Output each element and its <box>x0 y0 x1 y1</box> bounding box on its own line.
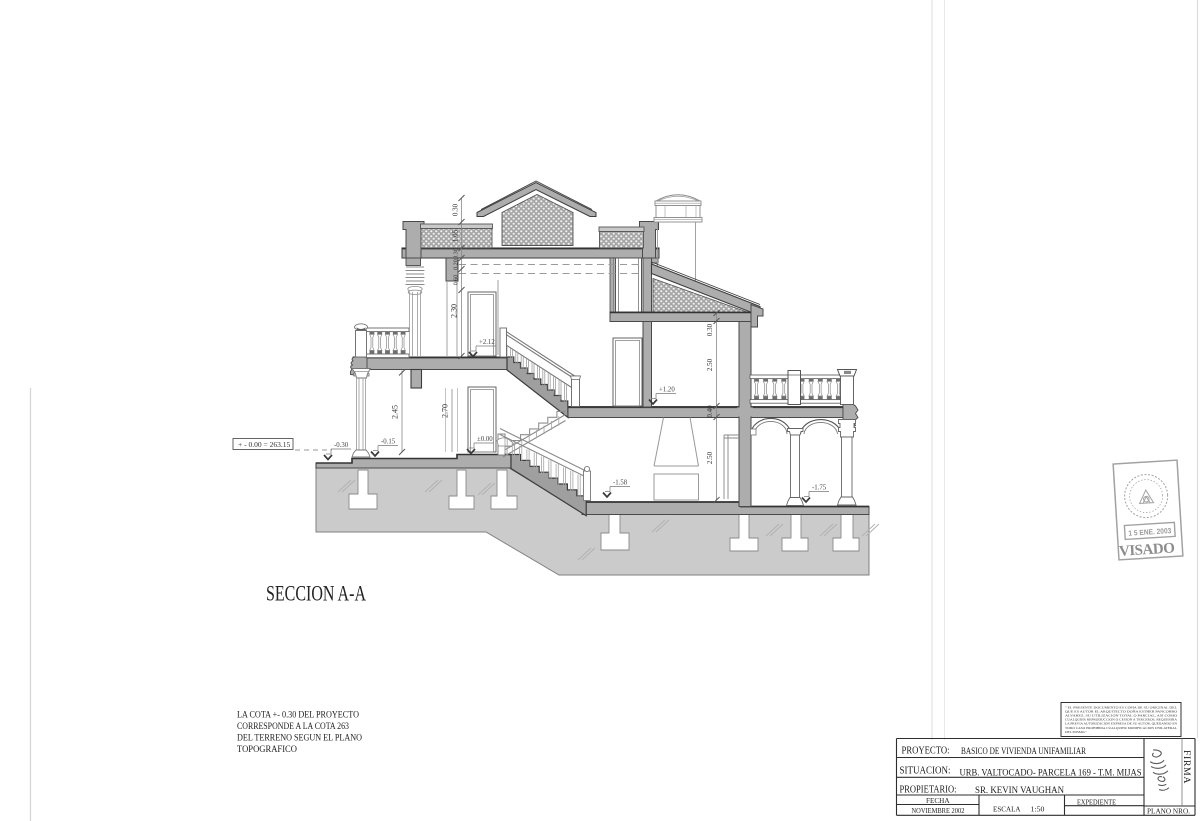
svg-text:-0.15: -0.15 <box>381 439 396 446</box>
svg-text:+ - 0.00 = 263.15: + - 0.00 = 263.15 <box>238 440 290 449</box>
svg-text:FIRMA: FIRMA <box>1181 750 1192 784</box>
svg-text:SITUACION:: SITUACION: <box>900 766 951 777</box>
svg-text:-1.58: -1.58 <box>613 480 628 487</box>
svg-text:0.20: 0.20 <box>454 259 460 270</box>
svg-text:SECCION A-A: SECCION A-A <box>266 581 366 606</box>
svg-text:+2.12: +2.12 <box>479 339 495 346</box>
svg-text:-0.30: -0.30 <box>334 442 349 449</box>
svg-text:URB. VALTOCADO- PARCELA 169 -: URB. VALTOCADO- PARCELA 169 - T.M. MIJAS <box>960 767 1142 778</box>
svg-text:NOVIEMBRE 2002: NOVIEMBRE 2002 <box>912 806 965 815</box>
svg-text:DEL TERRENO SEGUN EL PLANO: DEL TERRENO SEGUN EL PLANO <box>237 733 362 744</box>
svg-text:DEL MISMO.": DEL MISMO." <box>1065 730 1087 734</box>
svg-text:TOPOGRAFICO: TOPOGRAFICO <box>237 744 297 755</box>
svg-text:ESCALA: ESCALA <box>993 805 1021 814</box>
svg-text:±0.00: ±0.00 <box>477 436 493 443</box>
svg-text:BASICO DE VIVIENDA UNIFAMILIA: BASICO DE VIVIENDA UNIFAMILIAR <box>961 746 1086 757</box>
svg-text:SR. KEVIN VAUGHAN: SR. KEVIN VAUGHAN <box>975 785 1064 796</box>
svg-text:FECHA: FECHA <box>926 796 950 805</box>
svg-text:PROYECTO:: PROYECTO: <box>902 746 950 757</box>
svg-text:0.30: 0.30 <box>706 323 714 336</box>
svg-text:0.30: 0.30 <box>454 248 460 259</box>
svg-text:PROPIETARIO:: PROPIETARIO: <box>900 784 957 795</box>
svg-text:+1.20: +1.20 <box>659 387 675 394</box>
svg-text:EXPEDIENTE: EXPEDIENTE <box>1077 797 1116 806</box>
svg-text:2.45: 2.45 <box>391 405 400 419</box>
svg-text:2.70: 2.70 <box>441 404 450 418</box>
svg-text:PLANO NRO.: PLANO NRO. <box>1147 807 1190 816</box>
svg-text:1:50: 1:50 <box>1031 804 1045 813</box>
svg-text:CORRESPONDE A LA COTA 263: CORRESPONDE A LA COTA 263 <box>237 721 349 732</box>
svg-text:2.30: 2.30 <box>450 304 459 318</box>
svg-text:2.50: 2.50 <box>706 451 714 464</box>
svg-text:-1.75: -1.75 <box>812 485 827 492</box>
svg-text:0.60: 0.60 <box>454 275 460 286</box>
svg-text:1.05: 1.05 <box>452 229 460 242</box>
svg-text:0.30: 0.30 <box>452 203 460 216</box>
svg-text:2.50: 2.50 <box>706 358 714 371</box>
svg-text:LA COTA +- 0.30 DEL PROYECTO: LA COTA +- 0.30 DEL PROYECTO <box>237 710 359 721</box>
svg-text:0.40: 0.40 <box>706 405 714 418</box>
